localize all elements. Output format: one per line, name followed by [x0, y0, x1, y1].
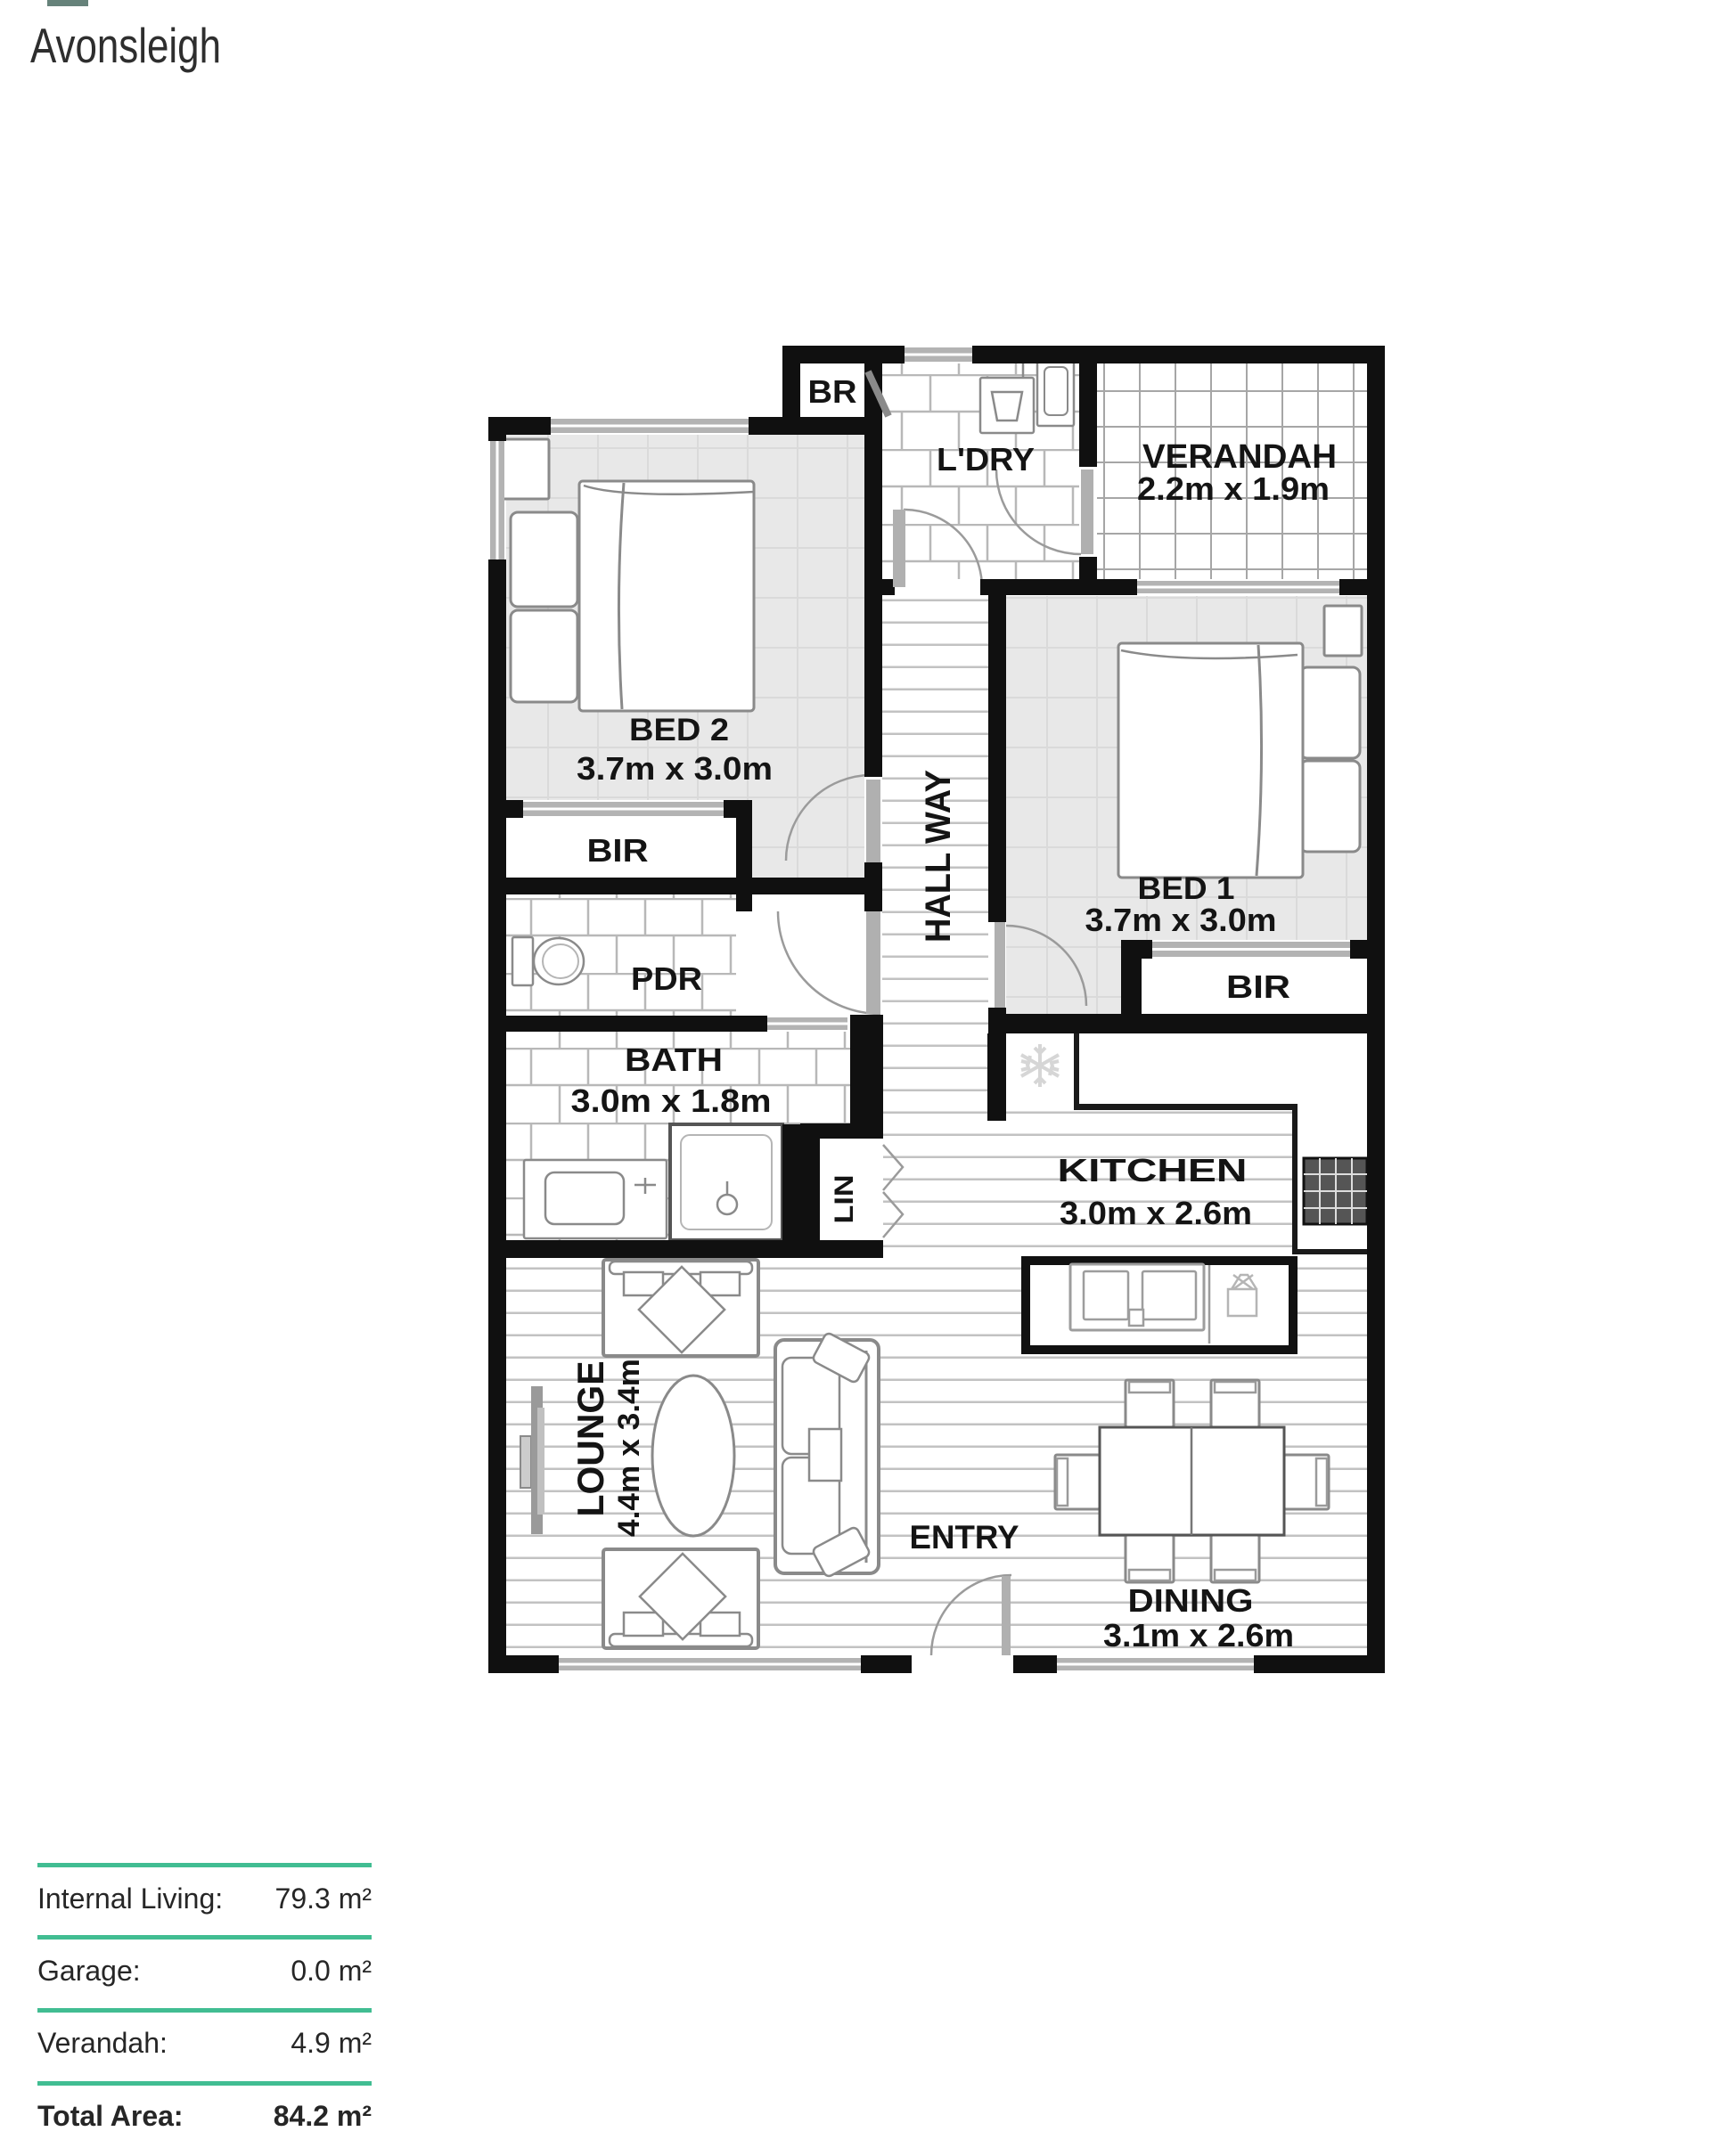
svg-text:3.7m x 3.0m: 3.7m x 3.0m: [577, 750, 773, 787]
svg-text:Total Area:: Total Area:: [37, 2100, 184, 2132]
svg-text:79.3 m²: 79.3 m²: [275, 1882, 372, 1915]
svg-text:DINING: DINING: [1128, 1582, 1254, 1619]
svg-text:LOUNGE: LOUNGE: [569, 1361, 611, 1517]
svg-text:BED 2: BED 2: [629, 713, 729, 747]
svg-text:Avonsleigh: Avonsleigh: [30, 18, 221, 73]
svg-text:HALL WAY: HALL WAY: [919, 770, 958, 943]
svg-text:BIR: BIR: [1226, 968, 1290, 1005]
svg-text:BIR: BIR: [587, 832, 649, 869]
svg-text:Garage:: Garage:: [37, 1955, 141, 1987]
svg-text:84.2 m²: 84.2 m²: [274, 2100, 372, 2132]
svg-text:3.1m x 2.6m: 3.1m x 2.6m: [1103, 1617, 1294, 1654]
svg-text:Verandah:: Verandah:: [37, 2027, 168, 2059]
svg-text:ENTRY: ENTRY: [910, 1519, 1019, 1556]
svg-text:PDR: PDR: [631, 960, 702, 997]
svg-text:KITCHEN: KITCHEN: [1058, 1152, 1248, 1188]
svg-text:3.7m x 3.0m: 3.7m x 3.0m: [1085, 902, 1277, 938]
svg-text:4.4m x 3.4m: 4.4m x 3.4m: [612, 1359, 646, 1537]
svg-text:BR: BR: [808, 373, 857, 410]
svg-text:2.2m x 1.9m: 2.2m x 1.9m: [1137, 470, 1330, 507]
svg-text:LIN: LIN: [830, 1175, 859, 1224]
svg-text:L'DRY: L'DRY: [937, 441, 1035, 478]
svg-text:0.0 m²: 0.0 m²: [291, 1955, 372, 1987]
svg-text:3.0m x 2.6m: 3.0m x 2.6m: [1060, 1195, 1252, 1231]
svg-text:Internal Living:: Internal Living:: [37, 1882, 223, 1915]
svg-text:4.9 m²: 4.9 m²: [291, 2027, 372, 2059]
svg-text:BATH: BATH: [625, 1041, 723, 1078]
svg-text:3.0m x 1.8m: 3.0m x 1.8m: [571, 1082, 772, 1119]
